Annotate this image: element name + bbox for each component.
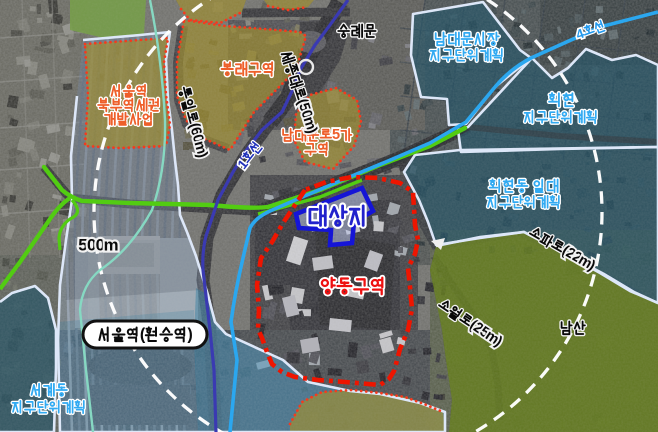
- svg-text:500m: 500m: [78, 236, 118, 255]
- svg-text:5: 5: [332, 127, 340, 143]
